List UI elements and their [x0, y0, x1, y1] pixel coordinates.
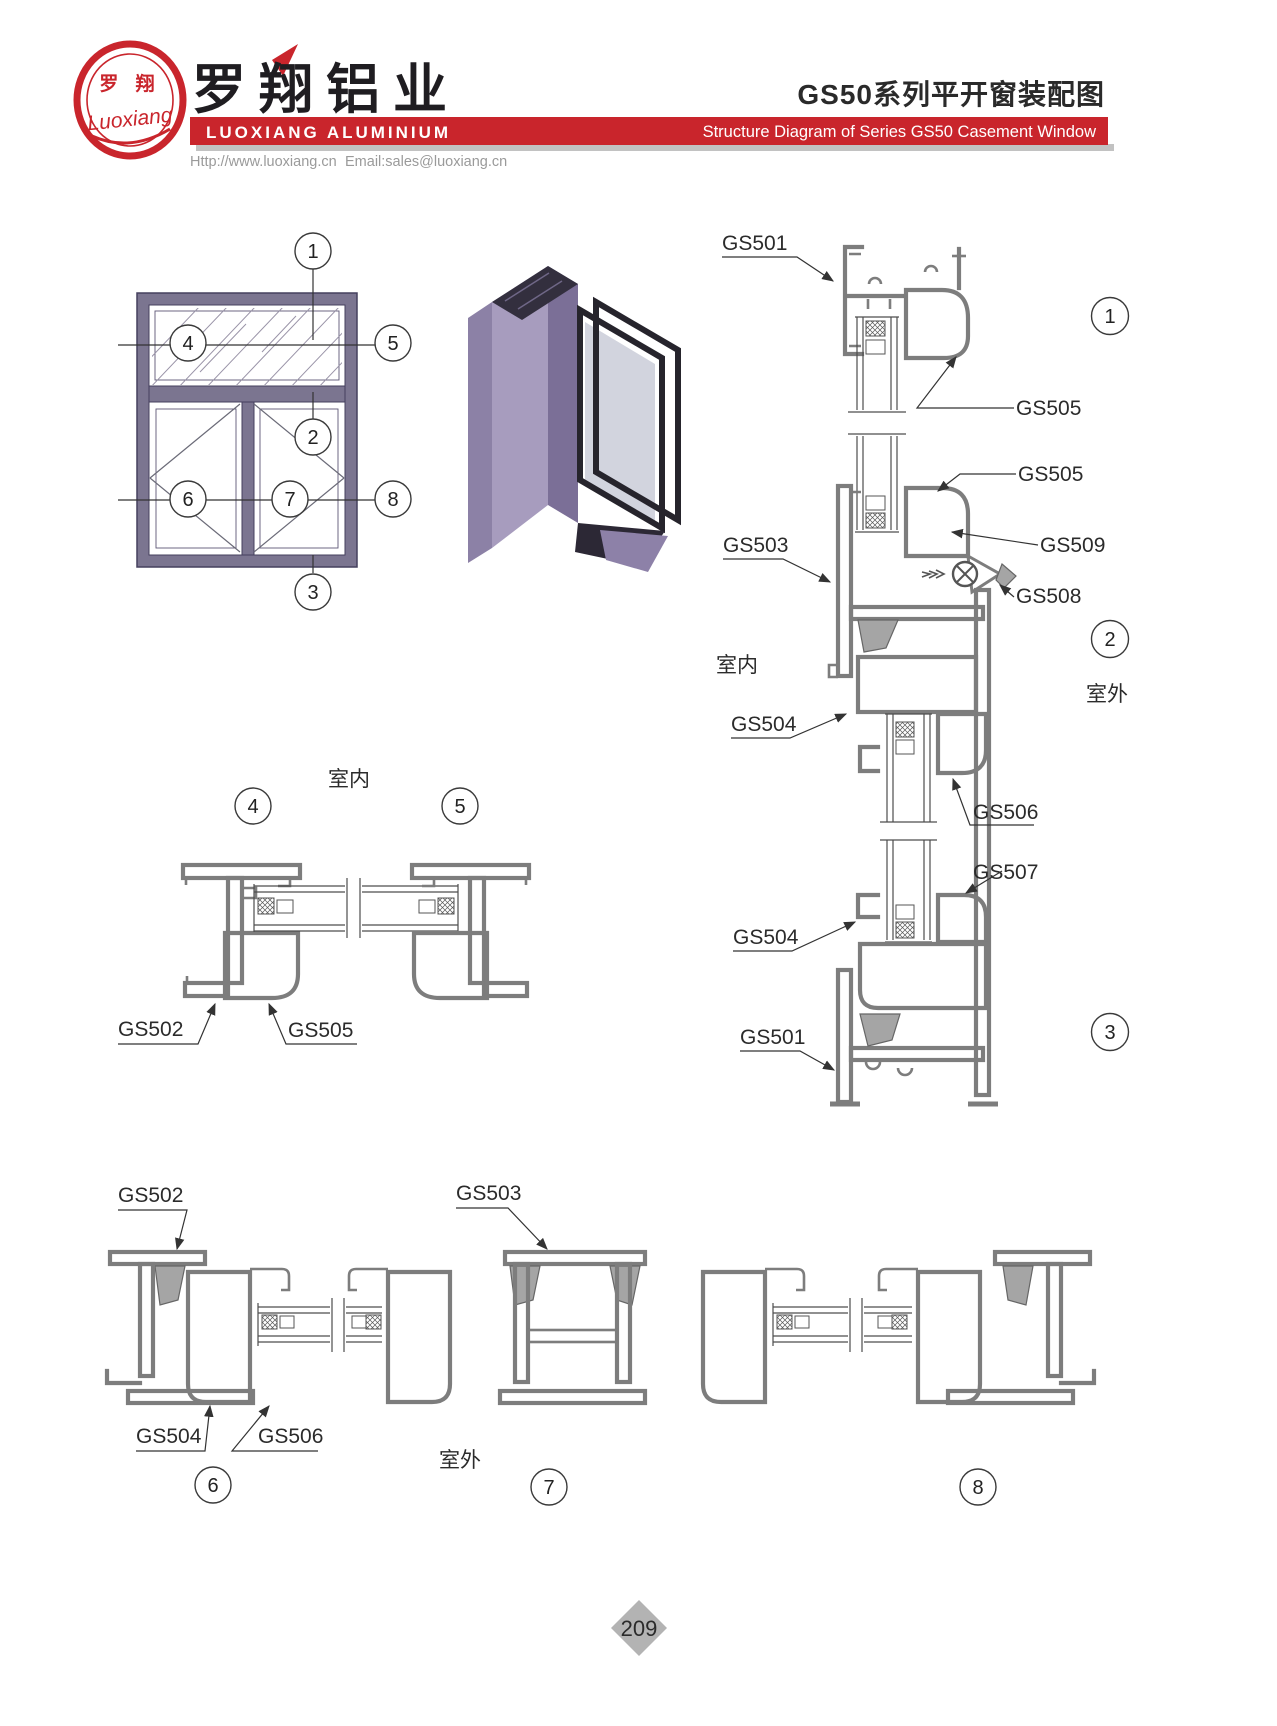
- callout-section-8: 8: [972, 1477, 983, 1499]
- sash-cover-gs506: [938, 714, 986, 773]
- sash-box: [918, 1272, 980, 1402]
- break-symbol: [850, 1298, 862, 1352]
- label-gs504-a: GS504: [731, 713, 797, 736]
- sash-gs504-lower: [860, 944, 986, 1008]
- glass-lower: [880, 714, 937, 942]
- glass-bottom-left: [258, 1298, 382, 1352]
- sash-box: [188, 1272, 250, 1402]
- label-gs504-b: GS504: [733, 926, 799, 949]
- gasket-gs508: [996, 564, 1016, 588]
- website-url: Http://www.luoxiang.cn: [190, 154, 337, 170]
- company-name-cn: 罗翔铝业: [192, 60, 460, 120]
- callout-5: 5: [387, 333, 398, 355]
- company-logo: 罗 翔 Luoxiang: [77, 44, 183, 156]
- window-transom: [149, 386, 345, 402]
- callout-1: 1: [307, 241, 318, 263]
- page-header: 罗 翔 Luoxiang 罗翔铝业 GS50系列平开窗装配图 LUOXIANG …: [77, 44, 1114, 170]
- callout-section-4: 4: [247, 796, 258, 818]
- label-gs505-mid: GS505: [288, 1019, 353, 1042]
- label-gs502-bottom: GS502: [118, 1184, 183, 1207]
- label-gs508: GS508: [1016, 585, 1081, 608]
- label-gs501-bottom: GS501: [740, 1026, 805, 1049]
- profile-3d-render: [468, 266, 678, 572]
- callout-section-7: 7: [543, 1477, 554, 1499]
- page-number: 209: [621, 1616, 658, 1641]
- label-gs507: GS507: [973, 861, 1038, 884]
- email-address: Email:sales@luoxiang.cn: [345, 154, 507, 170]
- glass-bottom-right: [773, 1298, 912, 1352]
- frame-right: [948, 1252, 1094, 1403]
- window-mullion: [242, 402, 254, 555]
- screw-icon: [922, 562, 977, 586]
- section-5-profile: [412, 865, 529, 998]
- label-gs503: GS503: [723, 534, 788, 557]
- break-symbol: [347, 878, 360, 938]
- callout-7: 7: [284, 489, 295, 511]
- indoor-label-mid: 室内: [328, 768, 370, 791]
- label-gs505-b: GS505: [1018, 463, 1083, 486]
- sash-box: [703, 1272, 765, 1402]
- callout-section-3: 3: [1104, 1022, 1115, 1044]
- page-footer: 209: [611, 1600, 667, 1656]
- callout-section-2: 2: [1104, 629, 1115, 651]
- mullion-gs503: [838, 486, 851, 676]
- horizontal-section-details-6-7-8: GS502 GS503: [107, 1182, 1094, 1505]
- label-gs503-bottom: GS503: [456, 1182, 521, 1205]
- label-gs506: GS506: [973, 801, 1038, 824]
- elevation-window-diagram: 1 4 5 2 6 7 8 3: [118, 233, 424, 610]
- sash-cover-gs507: [938, 895, 986, 942]
- label-gs501-top: GS501: [722, 232, 787, 255]
- callout-6: 6: [182, 489, 193, 511]
- callout-section-1: 1: [1104, 306, 1115, 328]
- logo-ring-icon: [77, 44, 183, 156]
- frame-left-gs502: [107, 1252, 253, 1403]
- logo-cn-text: 罗 翔: [99, 72, 160, 95]
- break-symbol: [332, 1298, 344, 1352]
- glass-upper: [848, 317, 906, 532]
- vertical-section-details: GS501 GS505 GS505 GS503 GS509 GS508 室内 室…: [716, 232, 1129, 1104]
- mullion-gs503-bottom: [500, 1252, 645, 1403]
- label-gs504-bottom: GS504: [136, 1425, 202, 1448]
- page-title-en: Structure Diagram of Series GS50 Casemen…: [703, 123, 1096, 141]
- sash-gs505-top: [906, 290, 968, 358]
- callout-section-5: 5: [454, 796, 465, 818]
- sash-gs505-bottom: [906, 488, 968, 556]
- break-symbol: [848, 412, 906, 434]
- catalog-page: 罗 翔 Luoxiang 罗翔铝业 GS50系列平开窗装配图 LUOXIANG …: [0, 0, 1277, 1721]
- frame-gs501-top: [845, 247, 862, 354]
- page-title-cn: GS50系列平开窗装配图: [797, 78, 1105, 110]
- break-symbol: [880, 822, 937, 840]
- callout-3: 3: [307, 582, 318, 604]
- callout-8: 8: [387, 489, 398, 511]
- outdoor-label: 室外: [1086, 683, 1128, 706]
- band-shadow: [196, 144, 1114, 151]
- sash-gs504-upper: [858, 657, 976, 712]
- label-gs506-bottom: GS506: [258, 1425, 323, 1448]
- callout-2: 2: [307, 427, 318, 449]
- frame-gs501-bottom: [838, 970, 851, 1102]
- callout-section-6: 6: [207, 1475, 218, 1497]
- label-gs502-mid: GS502: [118, 1018, 183, 1041]
- callout-4: 4: [182, 333, 193, 355]
- spring-clip-icon: [869, 266, 937, 284]
- indoor-label: 室内: [716, 654, 758, 677]
- label-gs505-a: GS505: [1016, 397, 1081, 420]
- company-name-en: LUOXIANG ALUMINIUM: [206, 123, 451, 142]
- sash-cover-gs505-mid: [225, 933, 298, 998]
- sash-box: [388, 1272, 450, 1402]
- horizontal-section-details-4-5: 室内 4 5: [118, 768, 529, 1044]
- label-gs509: GS509: [1040, 534, 1105, 557]
- outdoor-label-bottom: 室外: [439, 1449, 481, 1472]
